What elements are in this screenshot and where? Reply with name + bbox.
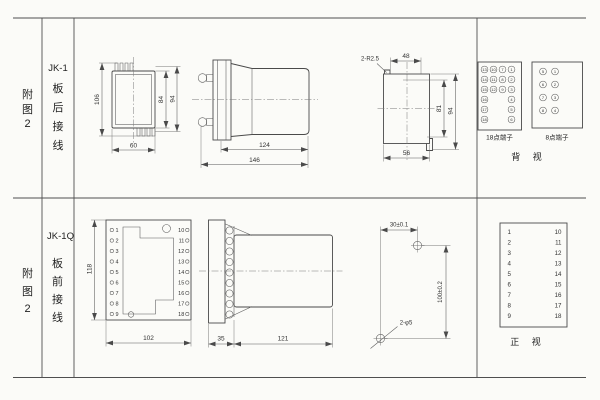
terminal-number: 6 [542, 82, 545, 87]
wiring-type-char: 前 [52, 274, 63, 288]
terminal-screw [226, 227, 233, 234]
terminal-number: 13 [555, 261, 562, 268]
centerlines [378, 62, 438, 161]
dim-label-102: 102 [143, 335, 154, 342]
terminal-circle [110, 291, 113, 294]
terminal-circle [110, 302, 113, 305]
dim-label-56: 56 [403, 150, 411, 157]
terminal-number: 1 [510, 67, 513, 72]
flange-outline [209, 220, 226, 323]
mounting-hole [128, 312, 134, 318]
dim-label-124: 124 [259, 142, 270, 149]
terminal-circle [186, 291, 189, 294]
terminal-screw [226, 269, 233, 276]
terminal-number: 9 [508, 313, 512, 320]
terminal-number: 4 [510, 97, 513, 102]
terminal-screw [226, 248, 233, 255]
dim-label-60: 60 [130, 143, 138, 150]
dim-label-94: 94 [448, 107, 455, 115]
terminal-screw [226, 279, 233, 286]
terminal-number: 2 [554, 82, 557, 87]
terminal-number: 18 [482, 117, 487, 122]
wiring-type-char: 线 [53, 138, 64, 152]
bottom-terminal-pins [137, 128, 155, 136]
dim-label-94: 94 [170, 95, 177, 103]
terminal8-label: 8点端子 [545, 133, 569, 142]
terminal-number: 7 [116, 291, 119, 297]
terminal-number: 7 [542, 95, 545, 100]
terminal-number: 4 [116, 260, 119, 266]
terminal-number: 12 [491, 87, 496, 92]
wiring-type-char: 板 [52, 256, 63, 270]
figure-sheet: 附 图 2 JK-1 板 后 接 线 106 84 94 60 [0, 0, 600, 400]
taper-lines [226, 224, 253, 319]
model-label: JK-1Q [47, 231, 74, 242]
jk1q-drilling-plan: 30±0.1 100±0.2 2-φ5 [371, 223, 451, 349]
dim-label-35: 35 [217, 336, 225, 343]
terminal-circle [110, 281, 113, 284]
front-view-label: 正 视 [510, 336, 546, 347]
terminal-number: 6 [508, 282, 512, 289]
terminal-number: 9 [501, 87, 504, 92]
terminal-number: 2 [116, 239, 119, 245]
terminal-number: 8 [542, 108, 545, 113]
terminal-number: 1 [554, 69, 557, 74]
terminal-number: 9 [116, 312, 119, 318]
dim-label-48: 48 [402, 53, 410, 60]
top-terminal-pins [115, 63, 133, 71]
terminal-number: 8 [501, 77, 504, 82]
terminal-number: 18 [178, 312, 184, 318]
jk1-side-view: 124 146 [192, 60, 318, 168]
terminal-circle [110, 260, 113, 263]
cutout-top-notch [385, 70, 391, 74]
hole-note-label: 2-φ5 [400, 321, 413, 327]
terminal-circle [186, 281, 189, 284]
row2-title-cell: JK-1Q 板 前 接 线 [47, 231, 74, 324]
terminal-number: 2 [510, 77, 513, 82]
terminal-number: 18 [555, 313, 562, 320]
terminal-number: 7 [508, 292, 512, 299]
dim-label-118: 118 [87, 263, 94, 274]
flange-inner-lines [218, 60, 227, 140]
radius-note-label: 2-R2.5 [361, 57, 380, 63]
jk1q-terminal-table: 1 2 3 4 5 6 7 8 9 10 11 12 13 14 15 16 1… [500, 223, 567, 347]
radius-leader-line [377, 64, 387, 73]
extension-lines [209, 309, 333, 348]
extension-lines [99, 63, 181, 154]
terminal-number: 10 [178, 228, 184, 234]
hole-note-leader [371, 327, 398, 349]
dim-label-121: 121 [278, 336, 289, 343]
terminal-screw [198, 118, 207, 127]
terminal-circle [186, 302, 189, 305]
terminal-number: 6 [510, 117, 513, 122]
inner-stepped-outline [123, 227, 174, 314]
terminal-number: 12 [178, 249, 184, 255]
terminal-number: 11 [179, 239, 185, 245]
terminal-number: 3 [554, 95, 557, 100]
jk1-front-view: 106 84 94 60 [94, 57, 181, 154]
terminal-screw [226, 300, 233, 307]
terminal-circle [110, 312, 113, 315]
terminal-number: 15 [178, 281, 184, 287]
terminal-number: 14 [482, 77, 487, 82]
terminal-number: 15 [555, 282, 562, 289]
terminal-number: 13 [178, 260, 184, 266]
terminal-number: 11 [491, 77, 496, 82]
terminal-number: 17 [555, 303, 562, 310]
model-label: JK-1 [48, 63, 68, 74]
terminal18-label: 18点端子 [486, 133, 513, 142]
wiring-type-char: 板 [53, 81, 64, 95]
row2-index-cell: 附 图 2 [22, 266, 33, 315]
terminal-number: 2 [508, 240, 512, 247]
terminal-screw [226, 237, 233, 244]
figure-index-char: 图 [22, 285, 33, 298]
terminal-screw [198, 74, 207, 83]
terminal-number: 14 [555, 271, 562, 278]
terminal-circle [110, 270, 113, 273]
jk1q-side-view: 35 121 [199, 220, 343, 348]
dim-label-146: 146 [249, 157, 260, 164]
terminal-number: 6 [116, 281, 119, 287]
rear-view-label: 背 视 [511, 151, 547, 162]
case-body-outline [231, 64, 309, 137]
terminal-number: 1 [508, 229, 512, 236]
flange-outline [213, 60, 231, 140]
terminal-number: 5 [116, 270, 119, 276]
dim-label-81: 81 [436, 105, 443, 113]
terminal-circle [186, 312, 189, 315]
figure-index-char: 2 [24, 118, 30, 130]
terminal-number: 13 [482, 67, 487, 72]
dim-label-30: 30±0.1 [390, 223, 409, 229]
jk1-panel-cutout-view: 2-R2.5 48 81 94 56 [361, 53, 459, 162]
row1-title-cell: JK-1 板 后 接 线 [48, 63, 68, 152]
row1-index-cell: 附 图 2 [22, 87, 33, 130]
terminal-number: 17 [482, 107, 487, 112]
figure-index-char: 附 [22, 266, 33, 280]
terminal-number: 10 [555, 229, 562, 236]
terminal-number: 17 [178, 302, 184, 308]
figure-index-char: 附 [22, 87, 33, 101]
wiring-type-char: 接 [52, 293, 63, 306]
terminal-number: 15 [482, 87, 487, 92]
screw-stems [207, 75, 214, 126]
terminal-number: 16 [178, 291, 184, 297]
terminal-circle [110, 239, 113, 242]
terminal-number: 5 [510, 107, 513, 112]
terminal-number: 16 [555, 292, 562, 299]
dim-label-84: 84 [158, 96, 165, 104]
terminal-number: 16 [482, 97, 487, 102]
wiring-type-char: 后 [53, 101, 64, 114]
dim-label-100: 100±0.2 [438, 281, 444, 303]
mounting-hole [163, 225, 171, 233]
terminal-number: 14 [178, 270, 184, 276]
jk1q-front-view: 1 2 3 4 5 6 7 8 9 10 11 12 13 14 15 16 1… [87, 220, 192, 347]
jk1-terminal-diagram: 13 14 15 16 17 18 10 11 12 7 8 9 1 2 3 4… [478, 62, 583, 162]
terminal-number: 7 [501, 67, 504, 72]
terminal-circle [186, 260, 189, 263]
terminal-number: 4 [508, 261, 512, 268]
terminal-number: 10 [491, 67, 496, 72]
terminal-number: 8 [116, 302, 119, 308]
terminal-circle [186, 249, 189, 252]
wiring-type-char: 接 [53, 120, 64, 133]
terminal-number: 4 [554, 108, 557, 113]
terminal-number: 8 [508, 303, 512, 310]
terminal-number: 1 [116, 228, 119, 234]
figure-index-char: 2 [24, 303, 30, 315]
terminal-circle [110, 249, 113, 252]
terminal-number: 11 [555, 240, 562, 247]
terminal-screw [226, 258, 233, 265]
terminal-circle [186, 228, 189, 231]
terminal-number: 5 [508, 271, 512, 278]
terminal-number: 5 [542, 69, 545, 74]
terminal-number: 3 [508, 250, 512, 257]
wiring-type-char: 线 [52, 310, 63, 324]
figure-index-char: 图 [22, 103, 33, 116]
terminal-circle [186, 239, 189, 242]
terminal-number: 3 [116, 249, 119, 255]
dim-label-106: 106 [94, 94, 101, 105]
terminal-circle [110, 228, 113, 231]
terminal-circle [186, 270, 189, 273]
terminal-number: 3 [510, 87, 513, 92]
terminal-screw [226, 290, 233, 297]
terminal-number: 12 [555, 250, 562, 257]
